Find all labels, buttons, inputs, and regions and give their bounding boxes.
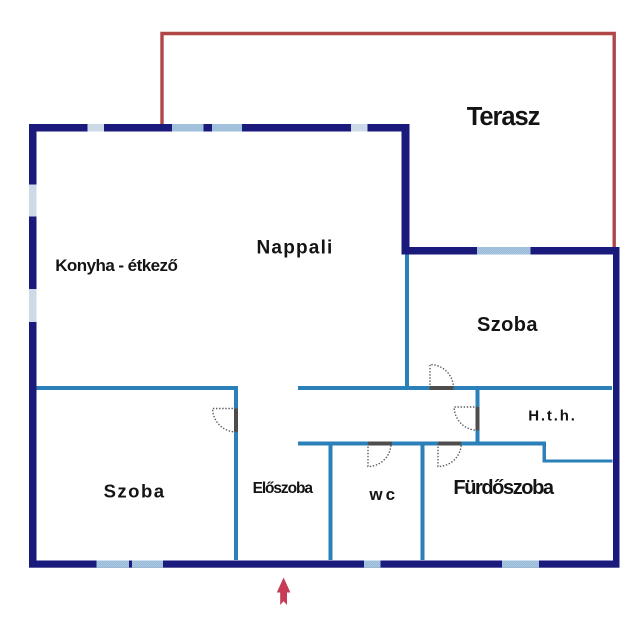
- svg-text:H.t.h.: H.t.h.: [528, 407, 577, 424]
- svg-text:Konyha - étkező: Konyha - étkező: [55, 256, 177, 275]
- svg-text:Nappali: Nappali: [257, 237, 334, 258]
- svg-text:Szoba: Szoba: [477, 314, 538, 336]
- svg-text:wc: wc: [368, 485, 398, 504]
- svg-text:Terasz: Terasz: [467, 103, 540, 131]
- svg-text:Szoba: Szoba: [104, 480, 166, 501]
- svg-text:Előszoba: Előszoba: [253, 480, 314, 497]
- svg-text:Fürdőszoba: Fürdőszoba: [453, 477, 555, 499]
